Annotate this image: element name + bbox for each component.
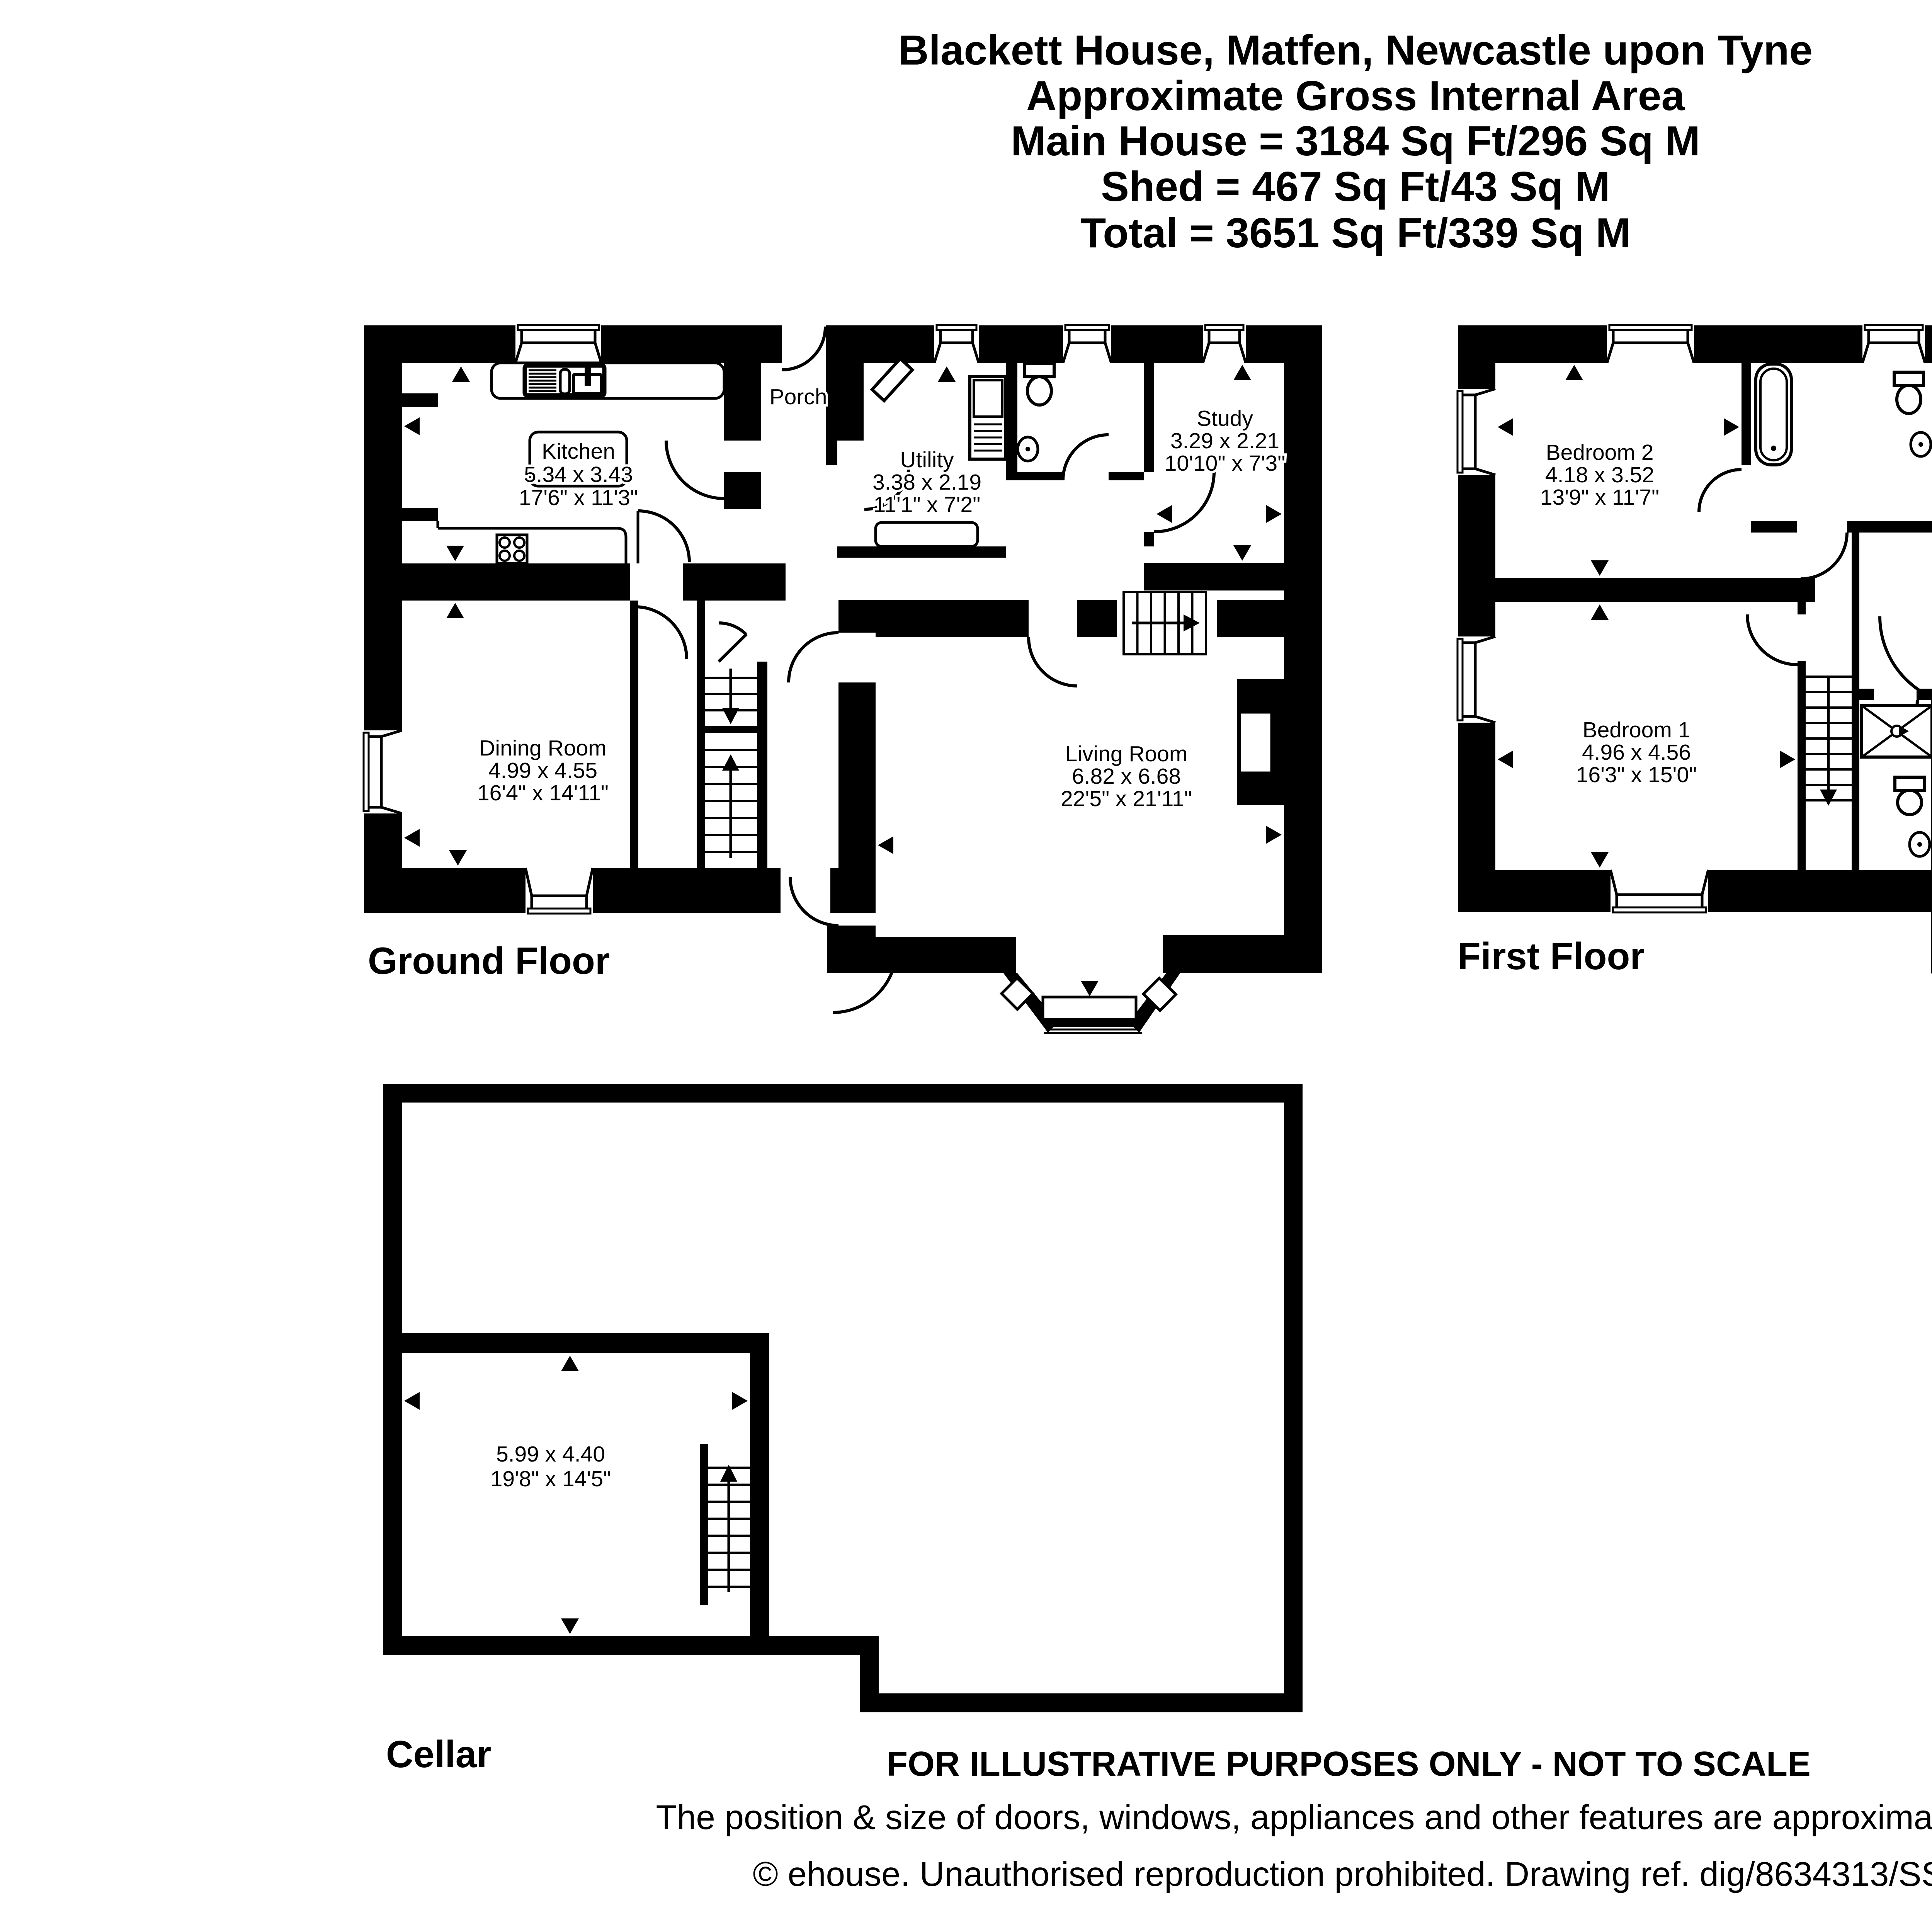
svg-text:22'5" x 21'11": 22'5" x 21'11" <box>1061 786 1192 811</box>
svg-text:10'10" x 7'3": 10'10" x 7'3" <box>1165 451 1286 476</box>
svg-text:Approximate Gross Internal Are: Approximate Gross Internal Area <box>1026 72 1685 119</box>
svg-text:Study: Study <box>1197 406 1253 431</box>
svg-text:Porch: Porch <box>770 385 827 409</box>
svg-text:Living Room: Living Room <box>1065 742 1188 766</box>
svg-text:Kitchen: Kitchen <box>542 439 615 464</box>
svg-text:5.99 x 4.40: 5.99 x 4.40 <box>496 1442 605 1467</box>
svg-text:FOR ILLUSTRATIVE PURPOSES ONLY: FOR ILLUSTRATIVE PURPOSES ONLY - NOT TO … <box>886 1745 1811 1783</box>
svg-text:Shed = 467 Sq Ft/43 Sq M: Shed = 467 Sq Ft/43 Sq M <box>1101 163 1610 210</box>
svg-text:3.29 x 2.21: 3.29 x 2.21 <box>1170 429 1279 453</box>
svg-text:Blackett House, Matfen, Newcas: Blackett House, Matfen, Newcastle upon T… <box>898 27 1813 74</box>
svg-text:Ground Floor: Ground Floor <box>368 939 610 982</box>
svg-text:3.38 x 2.19: 3.38 x 2.19 <box>872 470 981 495</box>
svg-text:6.82 x 6.68: 6.82 x 6.68 <box>1072 764 1181 789</box>
svg-text:© ehouse. Unauthorised reprodu: © ehouse. Unauthorised reproduction proh… <box>753 1855 1932 1893</box>
svg-text:4.99 x 4.55: 4.99 x 4.55 <box>488 758 597 783</box>
svg-text:4.96 x 4.56: 4.96 x 4.56 <box>1582 740 1691 765</box>
svg-text:Total = 3651 Sq Ft/339 Sq M: Total = 3651 Sq Ft/339 Sq M <box>1080 209 1631 257</box>
svg-text:First Floor: First Floor <box>1458 935 1645 977</box>
svg-text:5.34 x 3.43: 5.34 x 3.43 <box>524 462 633 487</box>
svg-text:The position & size of doors,: The position & size of doors, windows, a… <box>656 1798 1932 1836</box>
svg-text:16'4" x 14'11": 16'4" x 14'11" <box>477 781 609 805</box>
svg-text:Main House = 3184 Sq Ft/296 Sq: Main House = 3184 Sq Ft/296 Sq M <box>1011 117 1700 165</box>
svg-text:19'8" x 14'5": 19'8" x 14'5" <box>490 1467 611 1491</box>
svg-text:11'1" x 7'2": 11'1" x 7'2" <box>874 492 981 517</box>
svg-text:4.18 x 3.52: 4.18 x 3.52 <box>1545 463 1654 487</box>
svg-text:13'9" x 11'7": 13'9" x 11'7" <box>1540 485 1659 510</box>
svg-text:Cellar: Cellar <box>386 1733 491 1775</box>
svg-text:Bedroom 2: Bedroom 2 <box>1546 440 1654 465</box>
svg-text:Utility: Utility <box>900 448 954 472</box>
svg-text:17'6" x 11'3": 17'6" x 11'3" <box>519 485 638 510</box>
svg-text:Bedroom 1: Bedroom 1 <box>1583 718 1690 742</box>
svg-text:Dining Room: Dining Room <box>479 736 606 761</box>
svg-text:16'3" x 15'0": 16'3" x 15'0" <box>1576 762 1697 787</box>
